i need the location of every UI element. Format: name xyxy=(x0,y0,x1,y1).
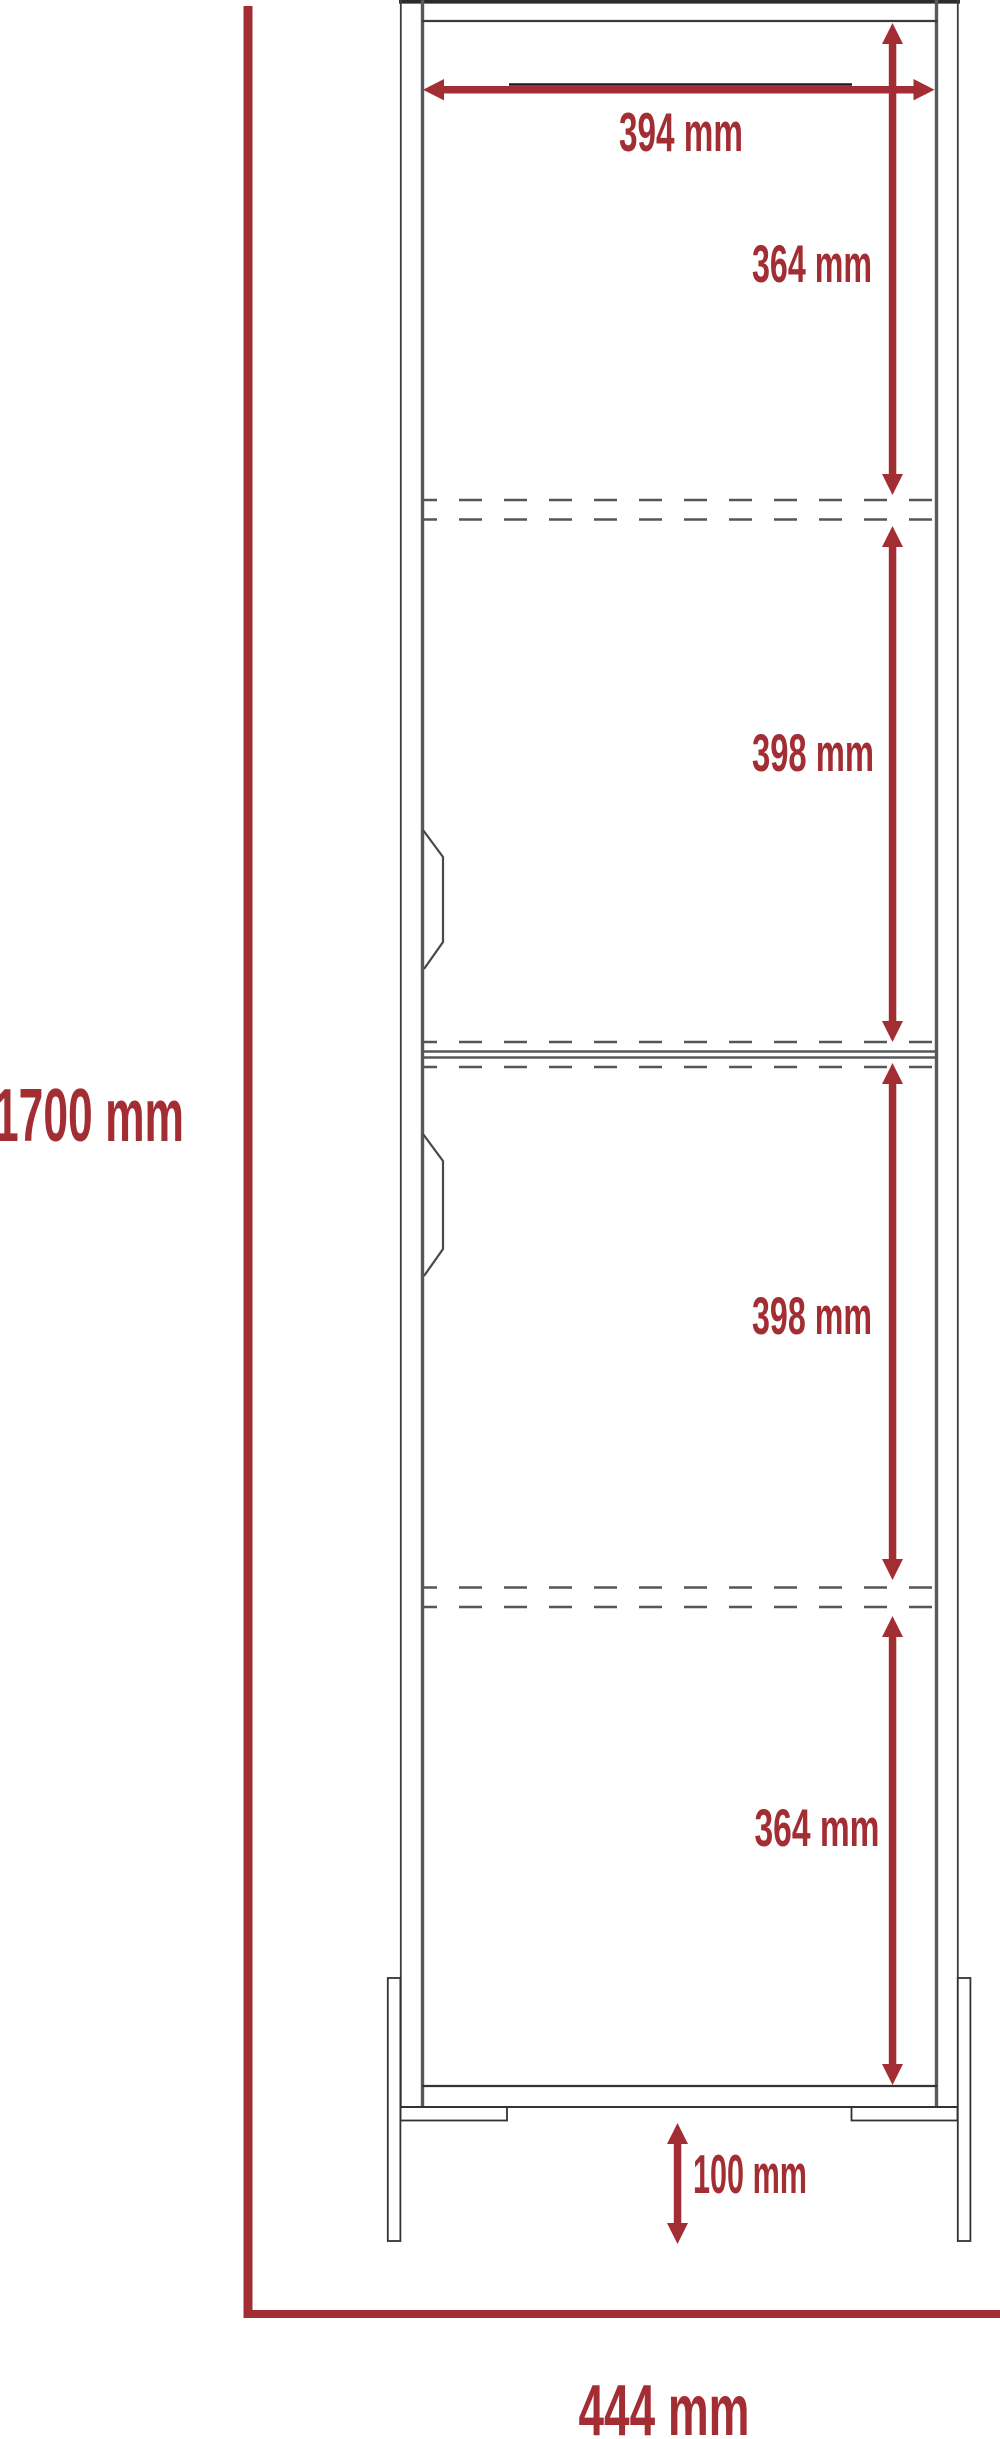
svg-text:1700 mm: 1700 mm xyxy=(0,1073,184,1157)
svg-text:398 mm: 398 mm xyxy=(752,1287,872,1346)
svg-text:100 mm: 100 mm xyxy=(693,2143,807,2205)
svg-text:394 mm: 394 mm xyxy=(619,101,743,163)
svg-text:444 mm: 444 mm xyxy=(579,2371,750,2439)
svg-text:398 mm: 398 mm xyxy=(752,724,874,783)
svg-text:364 mm: 364 mm xyxy=(752,235,872,294)
svg-text:364 mm: 364 mm xyxy=(755,1799,880,1858)
